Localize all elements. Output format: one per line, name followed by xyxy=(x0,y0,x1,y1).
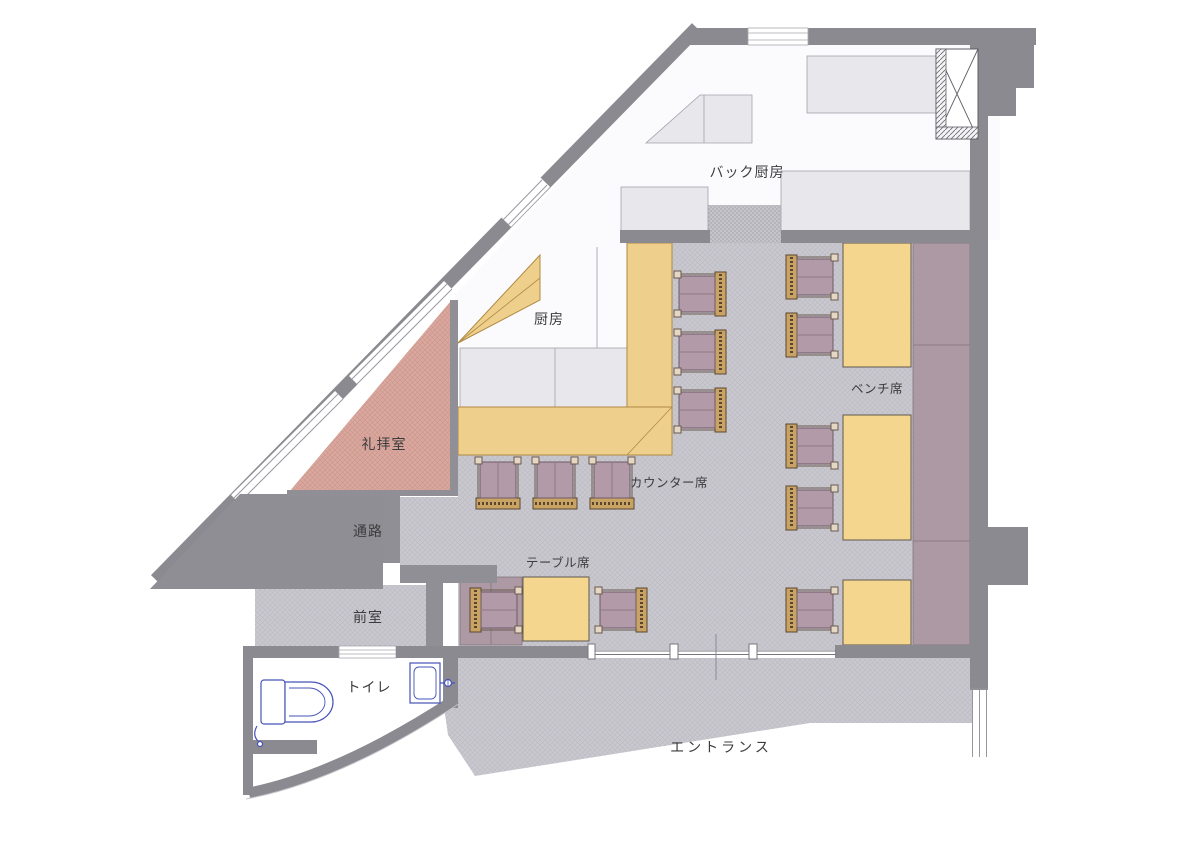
wall-south-right xyxy=(835,645,972,658)
chair xyxy=(470,587,522,633)
chair xyxy=(786,423,838,469)
label-table-seats: テーブル席 xyxy=(526,555,590,570)
label-bench-seats: ベンチ席 xyxy=(851,381,903,396)
label-toilet: トイレ xyxy=(347,679,392,695)
wall-prayer-bottom xyxy=(287,490,458,496)
wall-toilet-under xyxy=(253,740,317,754)
chair xyxy=(786,312,838,358)
chair xyxy=(786,254,838,300)
door-toilet xyxy=(339,646,396,658)
chair xyxy=(589,457,635,509)
chair xyxy=(786,587,838,633)
bench-table xyxy=(843,580,911,645)
floor-passage xyxy=(708,205,783,243)
wall-top xyxy=(690,28,1036,45)
floor-plan-drawing: バック厨房 厨房 礼拝室 通路 前室 トイレ カウンター席 テーブル席 ベンチ席… xyxy=(0,0,1200,848)
kitchen-equipment-band xyxy=(460,348,627,407)
equipment-block xyxy=(781,171,970,232)
wall-step xyxy=(986,86,1016,116)
label-kitchen: 厨房 xyxy=(534,311,564,327)
wall-step xyxy=(986,44,1034,88)
floor-corridor xyxy=(400,497,460,565)
wall-pier xyxy=(986,527,1028,585)
window-bottom-right xyxy=(970,689,988,757)
floor-plan-canvas: バック厨房 厨房 礼拝室 通路 前室 トイレ カウンター席 テーブル席 ベンチ席… xyxy=(0,0,1200,848)
label-entrance: エントランス xyxy=(670,739,772,755)
floor-prayer-room xyxy=(289,302,450,492)
label-counter-seats: カウンター席 xyxy=(630,475,708,490)
wall-south-left xyxy=(443,646,592,658)
floor-anteroom xyxy=(255,585,443,647)
floor-entrance xyxy=(443,658,972,776)
wall-prayer-right xyxy=(450,300,458,494)
chair xyxy=(786,485,838,531)
label-anteroom: 前室 xyxy=(353,609,383,625)
label-corridor: 通路 xyxy=(353,523,383,539)
wall-back-kitchen-left xyxy=(620,230,710,243)
wall-toilet-top-right xyxy=(396,646,443,658)
label-back-kitchen: バック厨房 xyxy=(710,164,785,180)
wall-corridor-left xyxy=(383,495,400,563)
chair xyxy=(532,457,578,509)
chair xyxy=(674,271,726,317)
wall-toilet-left xyxy=(243,658,253,795)
wall-anteroom-right xyxy=(426,565,443,647)
wall-toilet-top-left xyxy=(243,646,339,658)
wall-right xyxy=(970,44,988,690)
bench xyxy=(913,243,970,645)
equipment-block xyxy=(807,56,937,113)
bench-table xyxy=(843,415,911,540)
shaft-box xyxy=(936,49,978,139)
counter-horizontal xyxy=(458,407,672,455)
chair xyxy=(674,387,726,433)
bench-table xyxy=(843,243,911,367)
chair xyxy=(595,587,647,633)
label-prayer-room: 礼拝室 xyxy=(362,436,407,452)
dining-table xyxy=(523,577,589,641)
equipment-block xyxy=(621,187,708,232)
chair xyxy=(674,329,726,375)
door-back-kitchen xyxy=(748,28,808,45)
wall-back-kitchen-right xyxy=(781,230,972,243)
chair xyxy=(475,457,521,509)
wall-corridor-bottom xyxy=(400,565,497,583)
